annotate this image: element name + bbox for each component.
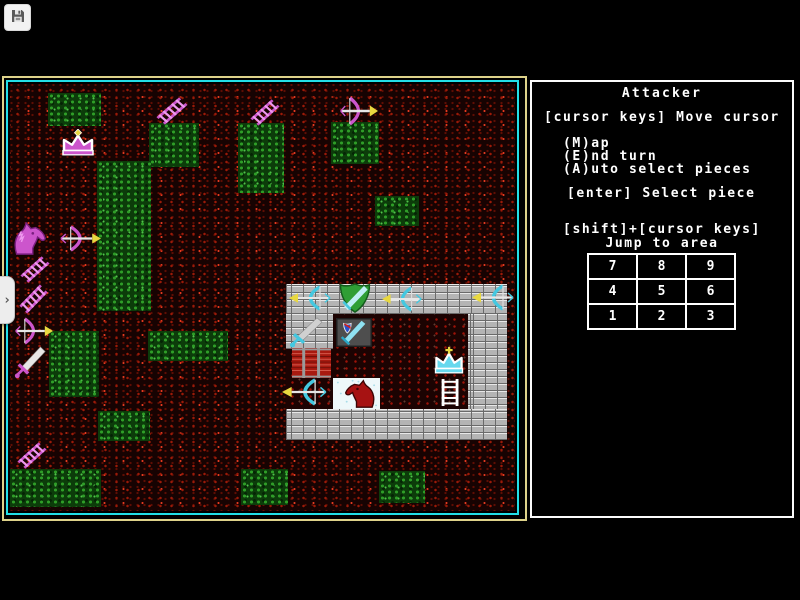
- forest-patch: [10, 469, 101, 507]
- defender-shield-tile[interactable]: [336, 318, 372, 347]
- defender-gate[interactable]: [292, 348, 331, 378]
- jump-cell-6: 6: [686, 279, 735, 304]
- forest-patch: [379, 471, 425, 503]
- attacker-bow[interactable]: [338, 96, 378, 126]
- defender-bow[interactable]: [382, 286, 424, 312]
- castle-wall: [286, 409, 507, 440]
- attacker-crown[interactable]: [58, 129, 98, 159]
- attacker-ladder[interactable]: [250, 99, 280, 126]
- jump-cell-7: 7: [588, 254, 637, 279]
- hint-jump-label: Jump to area: [532, 237, 792, 250]
- jump-cell-1: 1: [588, 304, 637, 329]
- defender-sword[interactable]: [289, 317, 325, 348]
- jump-cell-4: 4: [588, 279, 637, 304]
- hint-move-cursor: [cursor keys] Move cursor: [532, 111, 792, 124]
- save-button[interactable]: [4, 4, 31, 31]
- jump-cell-2: 2: [637, 304, 686, 329]
- attacker-bow[interactable]: [13, 317, 53, 345]
- defender-bow[interactable]: [289, 285, 333, 311]
- forest-patch: [375, 196, 419, 226]
- game-board[interactable]: [10, 84, 515, 511]
- defender-bow[interactable]: [282, 378, 329, 406]
- forest-patch: [49, 331, 99, 397]
- defender-ladder[interactable]: [439, 379, 462, 406]
- game-window: › Attacker [cursor keys] Move cursor (M)…: [0, 0, 800, 600]
- jump-area-grid: 7 8 9 4 5 6 1 2 3: [587, 253, 736, 330]
- forest-patch: [149, 123, 199, 167]
- jump-cell-9: 9: [686, 254, 735, 279]
- attacker-ladder[interactable]: [17, 442, 47, 469]
- hint-jump-keys: [shift]+[cursor keys]: [532, 223, 792, 236]
- floppy-disk-icon: [9, 7, 27, 28]
- defender-knight-tile[interactable]: [333, 378, 380, 409]
- forest-patch: [48, 93, 101, 126]
- attacker-ladder[interactable]: [156, 97, 188, 125]
- forest-patch: [331, 122, 379, 164]
- attacker-sword[interactable]: [14, 346, 48, 379]
- forest-patch: [238, 123, 284, 193]
- defender-crown[interactable]: [431, 347, 467, 377]
- drawer-toggle[interactable]: ›: [0, 276, 15, 324]
- forest-patch: [241, 469, 288, 505]
- attacker-bow[interactable]: [58, 225, 101, 252]
- info-panel: Attacker [cursor keys] Move cursor (M)ap…: [530, 80, 794, 518]
- attacker-knight[interactable]: [10, 222, 48, 256]
- forest-patch: [148, 331, 228, 361]
- hint-select-piece: [enter] Select piece: [567, 187, 756, 200]
- forest-patch: [98, 411, 150, 441]
- chevron-right-icon: ›: [3, 294, 11, 307]
- hint-auto-select: (A)uto select pieces: [563, 163, 752, 176]
- jump-cell-3: 3: [686, 304, 735, 329]
- jump-cell-8: 8: [637, 254, 686, 279]
- attacker-ladder[interactable]: [20, 256, 50, 283]
- jump-cell-5: 5: [637, 279, 686, 304]
- defender-bow[interactable]: [472, 284, 515, 311]
- panel-title: Attacker: [532, 87, 792, 100]
- defender-shield[interactable]: [337, 283, 373, 313]
- attacker-ladder[interactable]: [19, 284, 48, 314]
- forest-patch: [97, 161, 151, 311]
